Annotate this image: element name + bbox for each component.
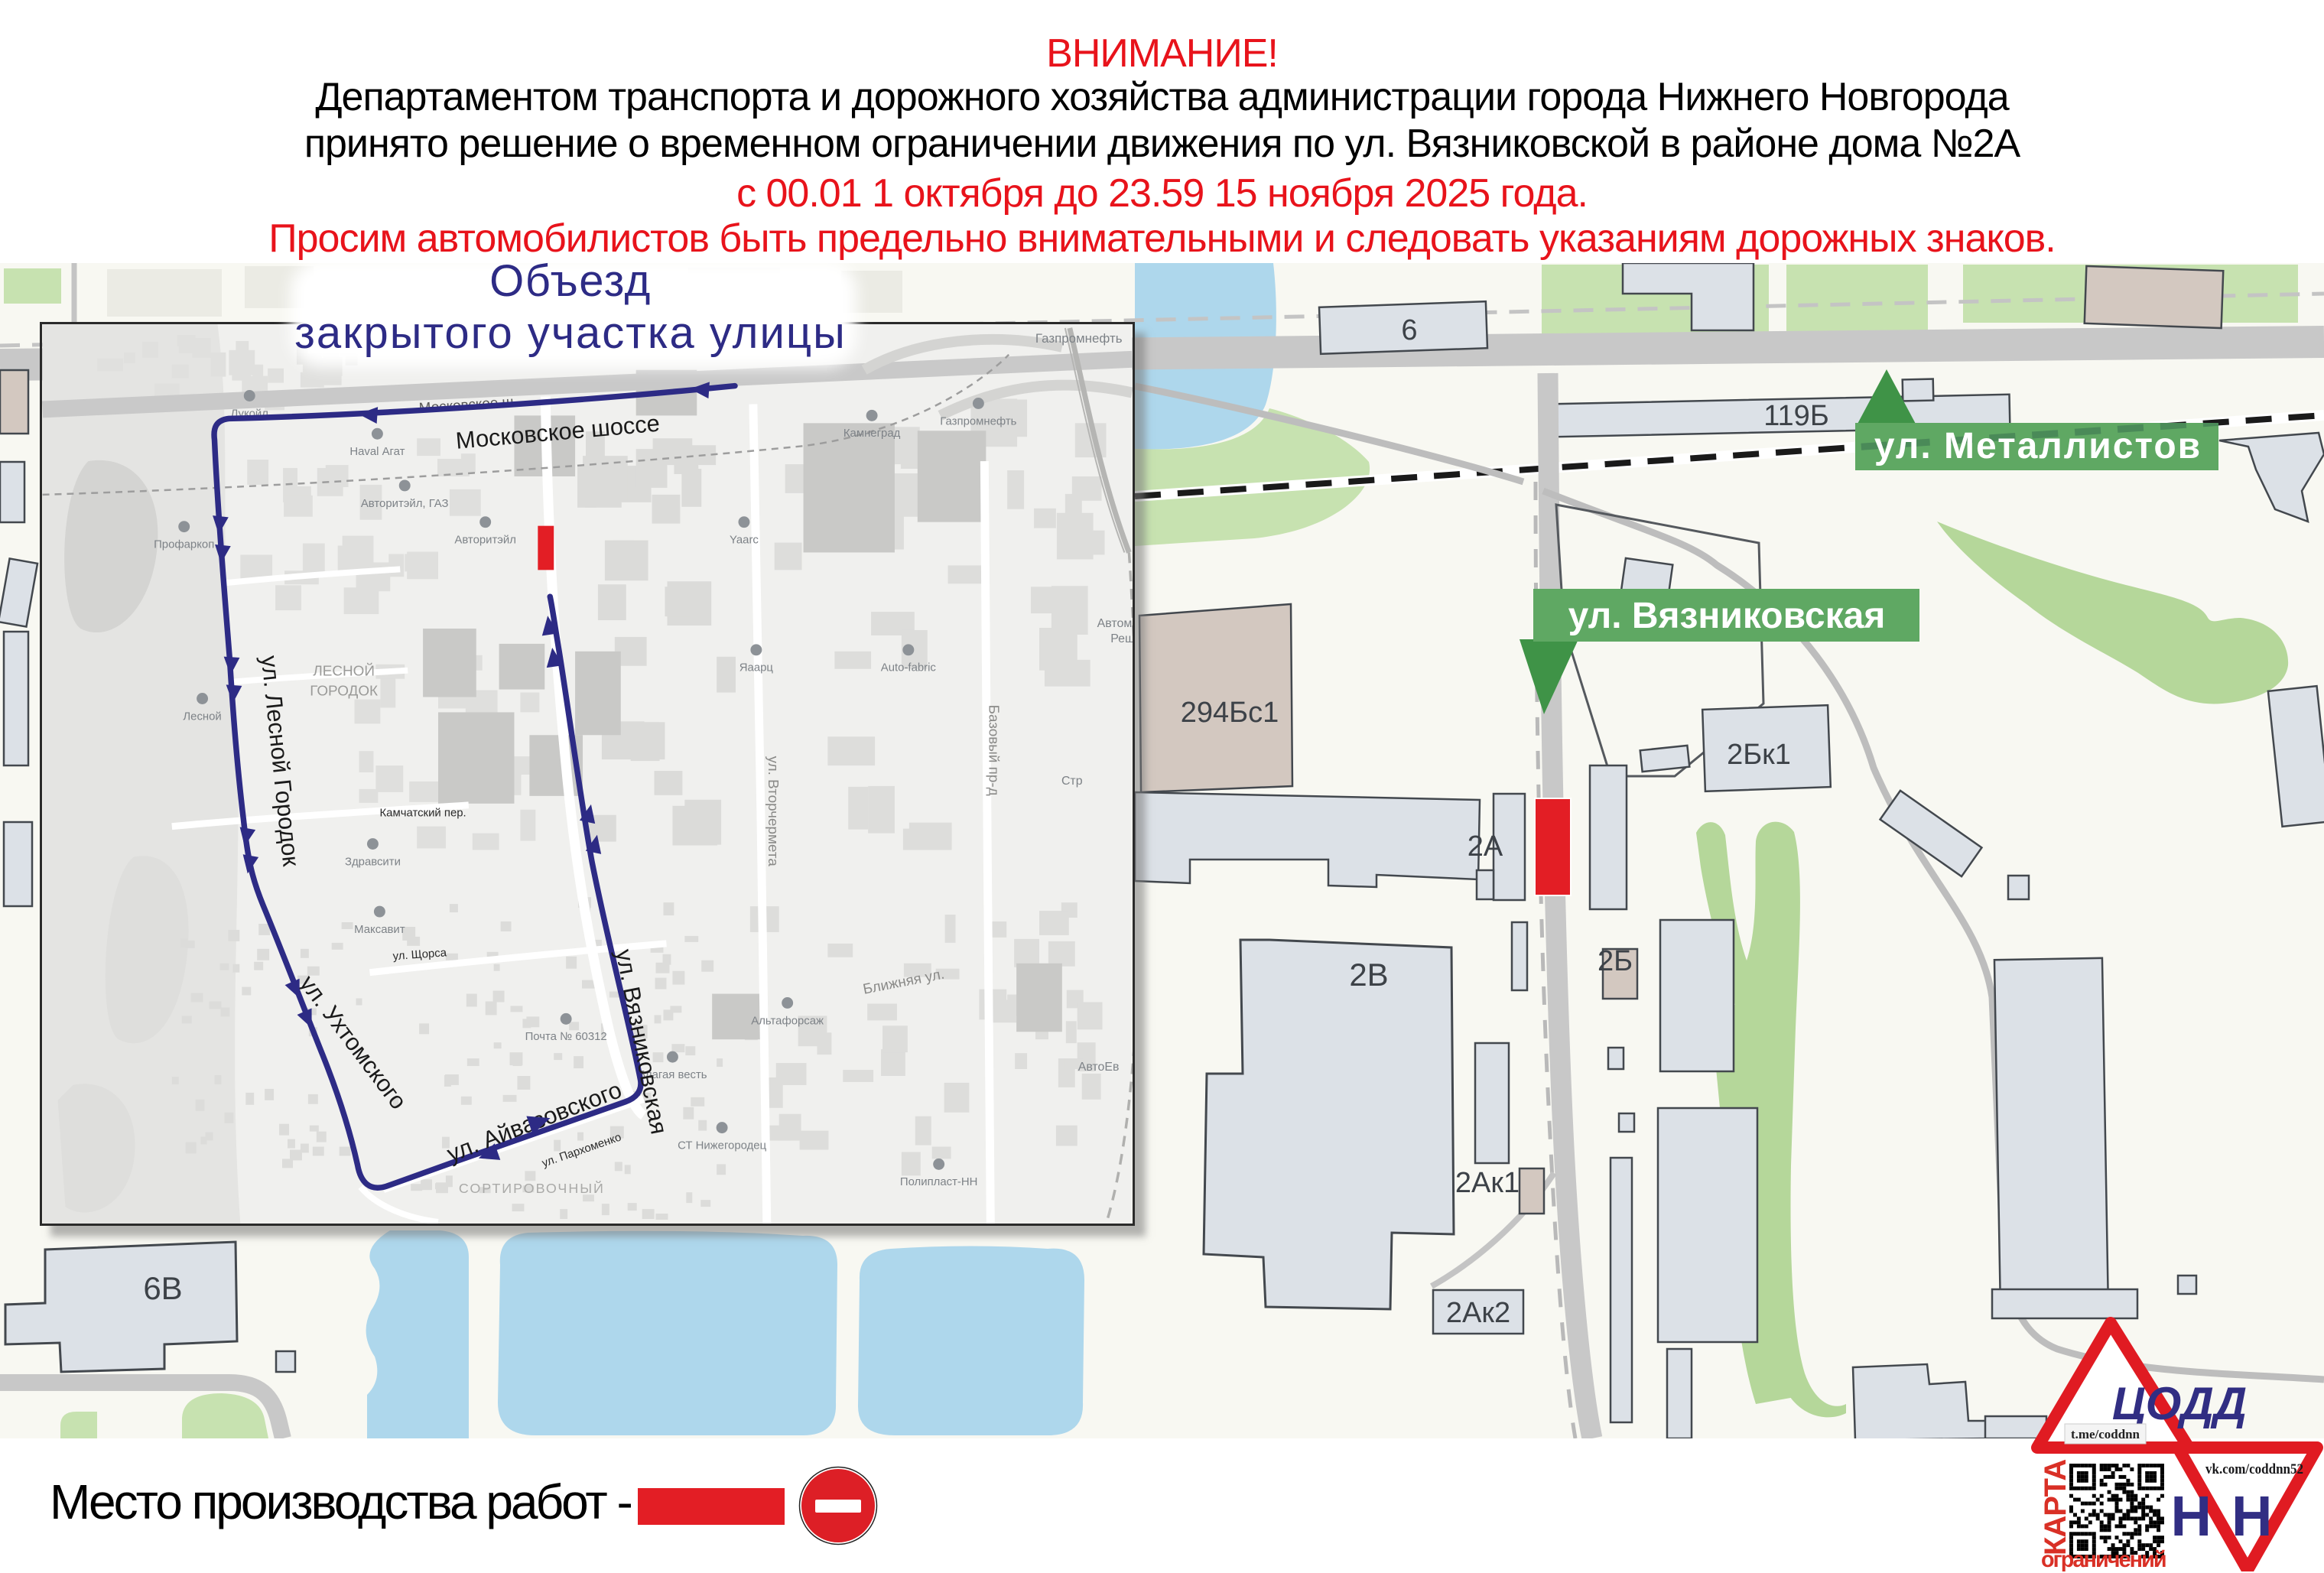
svg-text:Газпромнефть: Газпромнефть: [940, 414, 1016, 427]
svg-text:2А: 2А: [1468, 830, 1503, 863]
svg-text:Базовый пр-д: Базовый пр-д: [985, 705, 1001, 796]
svg-text:Авторитэйл: Авторитэйл: [454, 534, 516, 547]
svg-text:2В: 2В: [1349, 957, 1388, 993]
svg-text:ЦОДД: ЦОДД: [2112, 1378, 2247, 1429]
svg-text:ул. Металлистов: ул. Металлистов: [1874, 426, 2202, 466]
svg-text:Почта № 60312: Почта № 60312: [525, 1030, 607, 1043]
svg-text:ул. Вторчермета: ул. Вторчермета: [765, 756, 781, 867]
svg-text:Стр: Стр: [1061, 775, 1083, 788]
svg-text:Auto-fabric: Auto-fabric: [881, 661, 937, 674]
svg-text:vk.com/coddnn52: vk.com/coddnn52: [2205, 1461, 2303, 1477]
svg-text:Реше: Реше: [1110, 632, 1135, 645]
svg-text:Полипласт-НН: Полипласт-НН: [900, 1175, 978, 1188]
svg-text:Камнеград: Камнеград: [843, 427, 901, 440]
svg-text:Автомоб: Автомоб: [1097, 617, 1135, 630]
svg-text:2Ак1: 2Ак1: [1455, 1167, 1520, 1199]
svg-text:t.me/coddnn: t.me/coddnn: [2071, 1427, 2140, 1441]
svg-text:Лесной: Лесной: [183, 710, 221, 723]
svg-text:Yaarc: Yaarc: [730, 534, 759, 547]
svg-text:119Б: 119Б: [1763, 400, 1829, 432]
svg-text:Здравсити: Здравсити: [345, 855, 401, 868]
svg-text:2Б: 2Б: [1598, 945, 1633, 977]
svg-text:Haval Агат: Haval Агат: [349, 445, 405, 458]
svg-text:ул. Вязниковская: ул. Вязниковская: [1568, 596, 1886, 636]
svg-text:СОРТИРОВОЧНЫЙ: СОРТИРОВОЧНЫЙ: [459, 1180, 605, 1196]
svg-text:СТ Нижегородец: СТ Нижегородец: [678, 1139, 767, 1152]
svg-text:294Бс1: 294Бс1: [1181, 697, 1279, 729]
svg-text:Камчатский пер.: Камчатский пер.: [380, 807, 466, 820]
svg-text:Яаарц: Яаарц: [739, 661, 774, 674]
svg-text:6: 6: [1401, 314, 1417, 346]
svg-text:Максавит: Максавит: [354, 923, 405, 936]
svg-text:2Бк1: 2Бк1: [1727, 739, 1791, 771]
svg-text:Профаркоп: Профаркоп: [154, 538, 214, 551]
svg-text:НН: НН: [2171, 1484, 2293, 1548]
svg-text:Газпромнефть: Газпромнефть: [1035, 331, 1123, 346]
svg-text:АвтоЕв: АвтоЕв: [1078, 1061, 1120, 1074]
svg-text:Авторитэйл, ГАЗ: Авторитэйл, ГАЗ: [361, 497, 449, 510]
svg-text:Альтафорсаж: Альтафорсаж: [751, 1014, 824, 1027]
svg-text:6В: 6В: [143, 1270, 182, 1306]
svg-text:ЛЕСНОЙ: ЛЕСНОЙ: [313, 663, 375, 680]
svg-text:ГОРОДОК: ГОРОДОК: [310, 684, 378, 700]
svg-text:2Ак2: 2Ак2: [1446, 1297, 1510, 1329]
